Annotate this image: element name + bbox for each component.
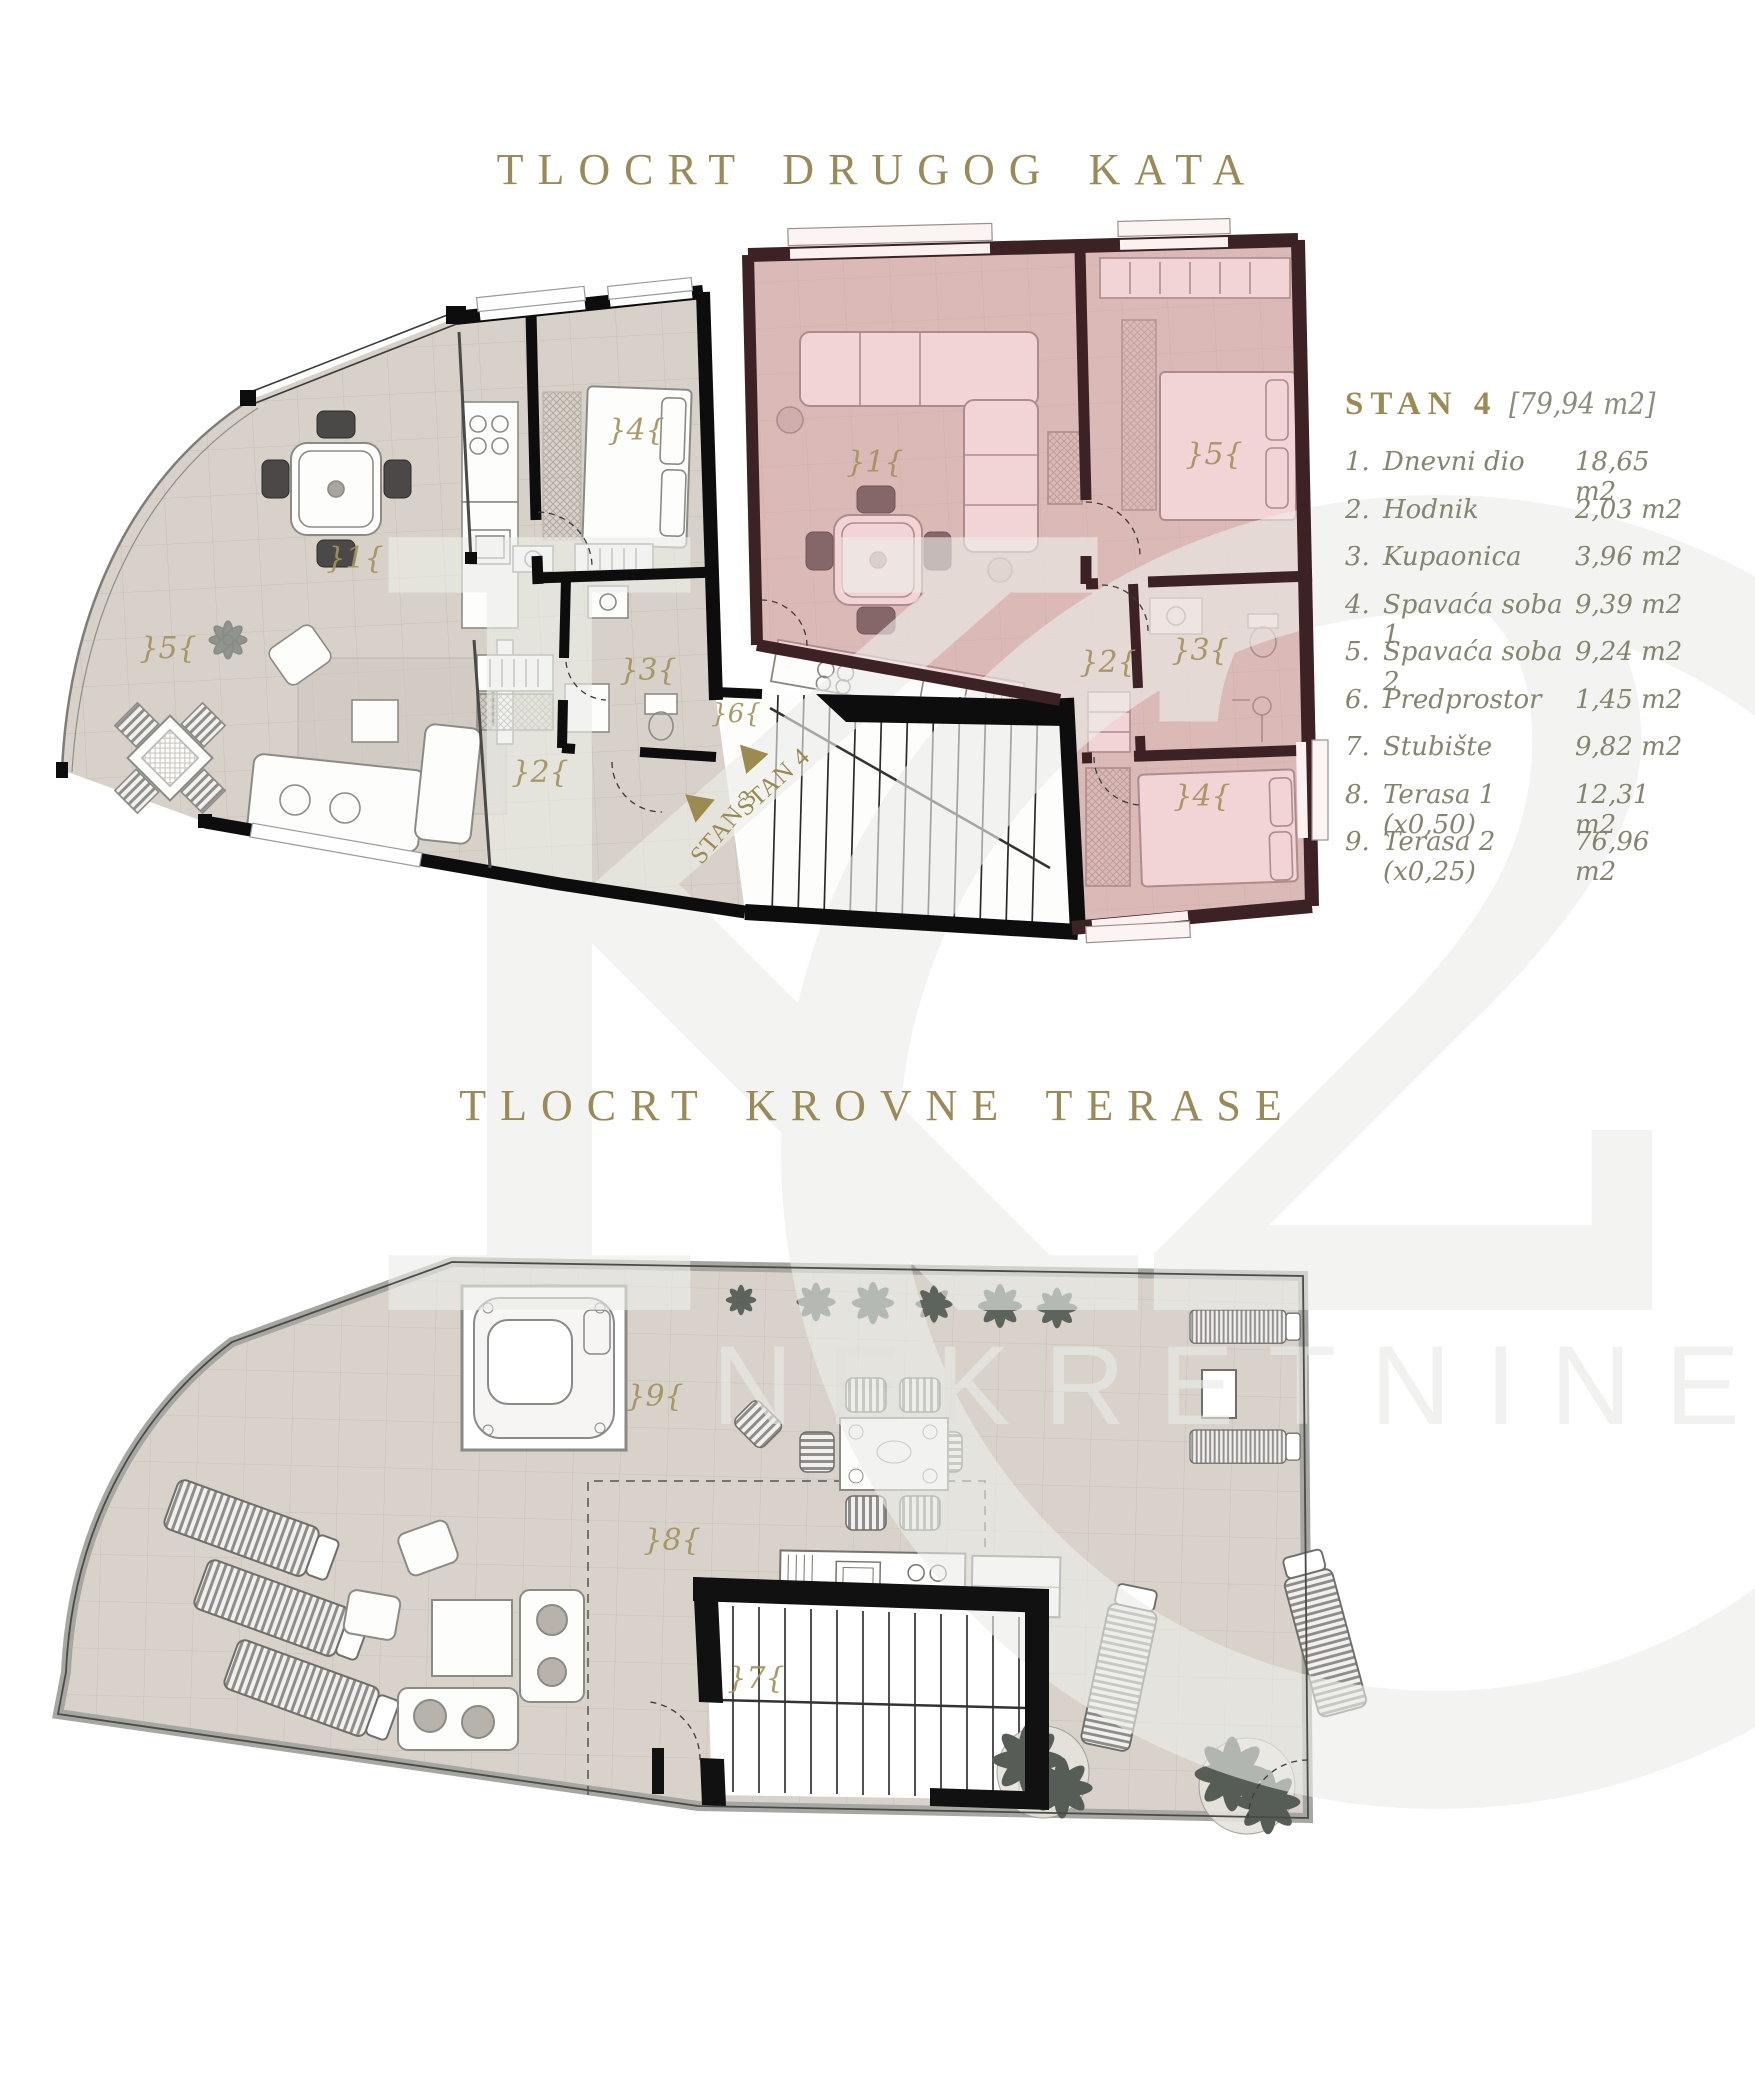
room-label-terasa2: }9{ (626, 1379, 683, 1414)
room-name: Predprostor (1383, 685, 1575, 715)
watermark-brand: NEKRETNINE (712, 1323, 1755, 1448)
room-area: 9,39 m2 (1575, 590, 1685, 620)
roof-title: TLOCRT KROVNE TERASE (0, 1080, 1755, 1131)
room-number: 3. (1345, 542, 1383, 572)
room-label-living-left: }1{ (326, 541, 383, 576)
legend-row: 1. Dnevni dio 18,65 m2 (1345, 447, 1685, 495)
legend-header: STAN 4 [79,94 m2] (1345, 386, 1685, 423)
room-label-bedroom-left: }4{ (607, 413, 664, 448)
room-label-stubiste: }7{ (727, 1661, 784, 1696)
legend-row: 3. Kupaonica 3,96 m2 (1345, 542, 1685, 590)
legend-row: 2. Hodnik 2,03 m2 (1345, 495, 1685, 543)
terrace-plant (209, 621, 246, 658)
room-number: 7. (1345, 732, 1383, 762)
room-label-hall-left: }2{ (511, 755, 568, 790)
floorplan-canvas: K2 NEKRETNINE (0, 0, 1755, 2096)
room-area: 1,45 m2 (1575, 685, 1685, 715)
room-area: 3,96 m2 (1575, 542, 1685, 572)
room-number: 1. (1345, 447, 1383, 477)
floor2-title: TLOCRT DRUGOG KATA (0, 144, 1755, 195)
stan4-legend: STAN 4 [79,94 m2] 1. Dnevni dio 18,65 m2… (1345, 386, 1685, 875)
legend-row: 6. Predprostor 1,45 m2 (1345, 685, 1685, 733)
room-area: 9,24 m2 (1575, 637, 1685, 667)
room-number: 9. (1345, 827, 1383, 857)
room-label-bedroom1-stan4: }4{ (1173, 779, 1230, 814)
room-name: Hodnik (1383, 495, 1575, 525)
room-label-terasa1: }8{ (643, 1523, 700, 1558)
legend-row: 4. Spavaća soba 1 9,39 m2 (1345, 590, 1685, 638)
room-name: Kupaonica (1383, 542, 1575, 572)
legend-row: 9. Terasa 2 (x0,25) 76,96 m2 (1345, 827, 1685, 875)
room-number: 4. (1345, 590, 1383, 620)
room-label-predprostor: }6{ (711, 699, 761, 729)
room-label-bath-stan4: }3{ (1171, 633, 1228, 668)
room-label-hall-stan4: }2{ (1079, 645, 1136, 680)
room-number: 2. (1345, 495, 1383, 525)
room-label-living-stan4: }1{ (846, 445, 903, 480)
unit-total-area: [79,94 m2] (1509, 387, 1655, 422)
room-area: 2,03 m2 (1575, 495, 1685, 525)
room-area: 76,96 m2 (1575, 827, 1685, 887)
legend-row: 7. Stubište 9,82 m2 (1345, 732, 1685, 780)
room-label-terrace5-left: }5{ (139, 631, 196, 666)
room-name: Terasa 2 (x0,25) (1383, 827, 1575, 887)
room-number: 6. (1345, 685, 1383, 715)
room-number: 5. (1345, 637, 1383, 667)
room-label-bath-left: }3{ (619, 653, 676, 688)
room-name: Stubište (1383, 732, 1575, 762)
floorplan-page: K2 NEKRETNINE (0, 0, 1755, 2096)
coffee-table (432, 1600, 512, 1676)
room-label-bedroom2-stan4: }5{ (1185, 437, 1242, 472)
room-number: 8. (1345, 780, 1383, 810)
legend-row: 8. Terasa 1 (x0,50) 12,31 m2 (1345, 780, 1685, 828)
room-name: Dnevni dio (1383, 447, 1575, 477)
legend-row: 5. Spavaća soba 2 9,24 m2 (1345, 637, 1685, 685)
unit-name: STAN 4 (1345, 386, 1497, 422)
room-area: 9,82 m2 (1575, 732, 1685, 762)
